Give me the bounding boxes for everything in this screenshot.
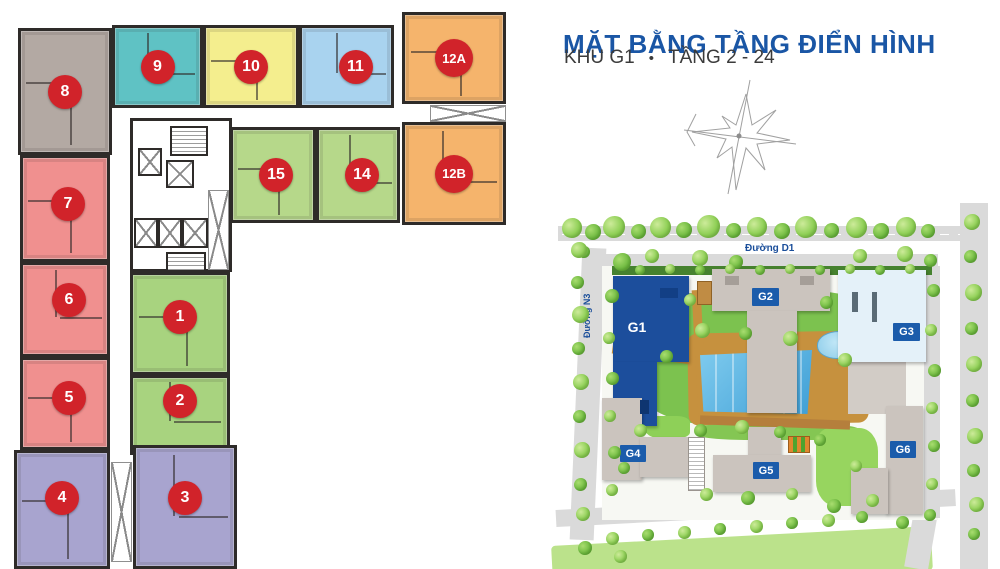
fountain: [697, 281, 712, 305]
unit-10-badge: 10: [234, 50, 268, 84]
tree-icon: [785, 264, 795, 274]
unit-4-badge: 4: [45, 481, 79, 515]
tree-icon: [741, 491, 755, 505]
tree-icon: [921, 224, 935, 238]
tree-icon: [603, 332, 615, 344]
tree-icon: [969, 497, 984, 512]
roof-detail: [660, 288, 678, 298]
tree-icon: [714, 523, 726, 535]
tree-icon: [608, 446, 621, 459]
unit-9-badge: 9: [141, 50, 175, 84]
building-g6-label: G6: [890, 441, 916, 458]
unit-11-badge: 11: [339, 50, 373, 84]
building-g6: [851, 468, 888, 514]
tree-icon: [605, 289, 619, 303]
tree-icon: [786, 517, 798, 529]
tree-icon: [846, 217, 867, 238]
tree-icon: [774, 426, 786, 438]
tree-icon: [814, 434, 826, 446]
tree-icon: [822, 514, 835, 527]
building-g3: [838, 270, 926, 362]
tree-icon: [606, 484, 618, 496]
tree-icon: [695, 323, 710, 338]
tree-icon: [573, 374, 589, 390]
tree-icon: [725, 264, 735, 274]
tree-icon: [735, 420, 749, 434]
tree-icon: [660, 350, 673, 363]
roof-detail: [725, 276, 739, 285]
tree-icon: [964, 214, 980, 230]
tree-icon: [635, 265, 645, 275]
tree-icon: [928, 440, 940, 452]
tree-icon: [726, 223, 741, 238]
tree-icon: [964, 250, 977, 263]
tree-icon: [968, 528, 980, 540]
tree-icon: [875, 265, 885, 275]
tree-icon: [927, 284, 940, 297]
tree-icon: [572, 342, 585, 355]
tree-icon: [774, 223, 790, 239]
page: { "header": { "title": "MẶT BẰNG TẦNG ĐI…: [0, 0, 1000, 569]
tree-icon: [585, 224, 601, 240]
tree-icon: [824, 223, 839, 238]
building-g4-label: G4: [620, 445, 646, 462]
tree-icon: [694, 424, 707, 437]
tree-icon: [573, 410, 586, 423]
tree-icon: [967, 428, 983, 444]
tree-icon: [571, 276, 584, 289]
roof-detail: [852, 292, 858, 312]
tree-icon: [755, 265, 765, 275]
tree-icon: [684, 294, 696, 306]
tree-icon: [924, 509, 936, 521]
tree-icon: [676, 222, 692, 238]
building-g5-label: G5: [753, 462, 779, 479]
unit-12a-badge: 12A: [435, 39, 473, 77]
tree-icon: [853, 249, 867, 263]
walkway: [688, 437, 705, 491]
tree-icon: [967, 464, 980, 477]
roof-detail: [640, 400, 649, 414]
unit-6-badge: 6: [52, 283, 86, 317]
tree-icon: [618, 462, 630, 474]
tree-icon: [645, 249, 659, 263]
tree-icon: [965, 322, 978, 335]
unit-1-badge: 1: [163, 300, 197, 334]
unit-2-badge: 2: [163, 384, 197, 418]
tree-icon: [820, 296, 833, 309]
tree-icon: [966, 394, 979, 407]
tree-icon: [574, 478, 587, 491]
roof-detail: [872, 292, 877, 322]
tree-icon: [739, 327, 752, 340]
tree-icon: [665, 264, 675, 274]
tree-icon: [897, 246, 913, 262]
tree-icon: [642, 529, 654, 541]
tree-icon: [850, 460, 862, 472]
tree-icon: [747, 217, 767, 237]
tree-icon: [650, 217, 671, 238]
tree-icon: [924, 254, 937, 267]
tree-icon: [634, 424, 647, 437]
tree-icon: [873, 223, 889, 239]
tree-icon: [905, 264, 915, 274]
tree-icon: [631, 224, 646, 239]
tree-icon: [786, 488, 798, 500]
tree-icon: [783, 331, 798, 346]
roof-detail: [800, 276, 814, 285]
unit-5-badge: 5: [52, 381, 86, 415]
building-g6: [886, 406, 923, 514]
playground: [788, 436, 810, 453]
unit-8-badge: 8: [48, 75, 82, 109]
tree-icon: [896, 217, 916, 237]
tree-icon: [614, 550, 627, 563]
tree-icon: [572, 306, 589, 323]
tree-icon: [795, 216, 817, 238]
unit-7-badge: 7: [51, 187, 85, 221]
tree-icon: [966, 356, 982, 372]
unit-15-badge: 15: [259, 158, 293, 192]
tree-icon: [692, 250, 708, 266]
tree-icon: [562, 218, 582, 238]
tree-icon: [700, 488, 713, 501]
road-label-d1: Đường D1: [745, 243, 794, 254]
tree-icon: [606, 532, 619, 545]
tree-icon: [574, 442, 590, 458]
tree-icon: [827, 499, 841, 513]
tree-icon: [866, 494, 879, 507]
building-g3-label: G3: [893, 323, 920, 341]
tree-icon: [896, 516, 909, 529]
tree-icon: [925, 324, 937, 336]
tree-icon: [571, 242, 587, 258]
tree-icon: [926, 402, 938, 414]
tree-icon: [603, 216, 625, 238]
tree-icon: [965, 284, 982, 301]
tree-icon: [856, 511, 868, 523]
tree-icon: [845, 264, 855, 274]
site-plan: G1 G2 G3 G4 G5 G6 Đường D1 Đường N3: [0, 0, 1000, 569]
tree-icon: [815, 265, 825, 275]
tree-icon: [838, 353, 852, 367]
tree-icon: [928, 364, 941, 377]
tree-icon: [604, 410, 616, 422]
road-n3: [570, 248, 607, 541]
unit-3-badge: 3: [168, 481, 202, 515]
tree-icon: [613, 253, 631, 271]
tree-icon: [695, 265, 705, 275]
unit-14-badge: 14: [345, 158, 379, 192]
tree-icon: [606, 372, 619, 385]
building-g1-label: G1: [620, 318, 654, 336]
tree-icon: [926, 478, 938, 490]
building-g2-label: G2: [752, 288, 779, 306]
building-g2: [747, 311, 797, 413]
tree-icon: [678, 526, 691, 539]
tree-icon: [697, 215, 720, 238]
tree-icon: [578, 541, 592, 555]
unit-12b-badge: 12B: [435, 155, 473, 193]
tree-icon: [576, 507, 590, 521]
tree-icon: [750, 520, 763, 533]
